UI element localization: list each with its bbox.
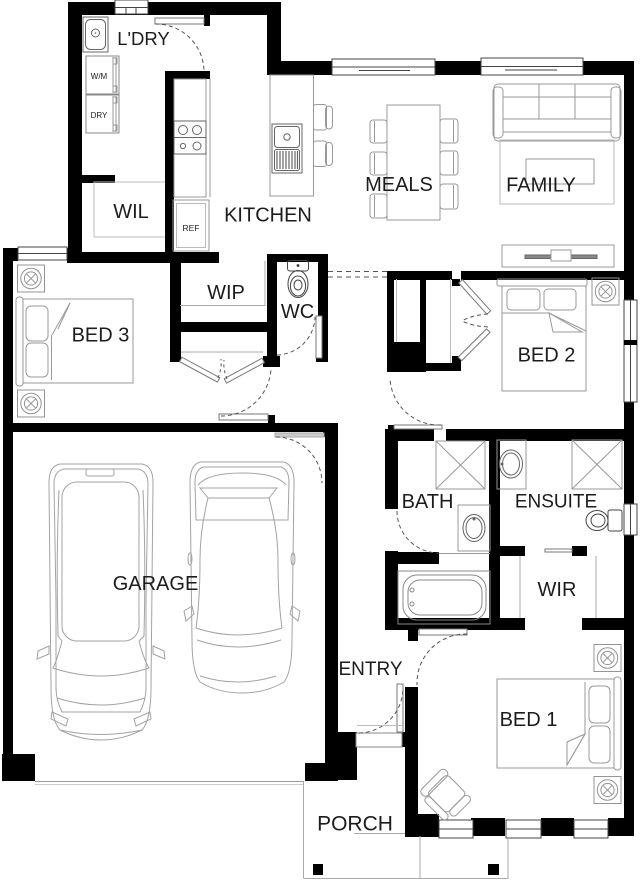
svg-text:BED 2: BED 2 [518, 345, 576, 367]
svg-text:WIL: WIL [113, 201, 149, 223]
svg-text:ENSUITE: ENSUITE [515, 492, 597, 513]
svg-text:GARAGE: GARAGE [113, 573, 199, 595]
svg-text:WIP: WIP [207, 282, 245, 304]
svg-text:REF: REF [183, 223, 200, 233]
svg-text:BATH: BATH [402, 491, 454, 513]
svg-text:DRY: DRY [91, 111, 108, 120]
svg-text:WIR: WIR [538, 579, 577, 601]
svg-text:MEALS: MEALS [365, 174, 433, 196]
svg-text:L'DRY: L'DRY [117, 28, 170, 49]
svg-text:KITCHEN: KITCHEN [224, 205, 312, 227]
svg-text:WC: WC [281, 301, 314, 323]
svg-text:BED 3: BED 3 [72, 325, 130, 347]
svg-text:FAMILY: FAMILY [506, 175, 576, 197]
svg-text:PORCH: PORCH [317, 813, 393, 836]
svg-text:ENTRY: ENTRY [338, 659, 402, 680]
svg-text:BED 1: BED 1 [500, 709, 558, 731]
svg-text:W/M: W/M [91, 72, 108, 81]
